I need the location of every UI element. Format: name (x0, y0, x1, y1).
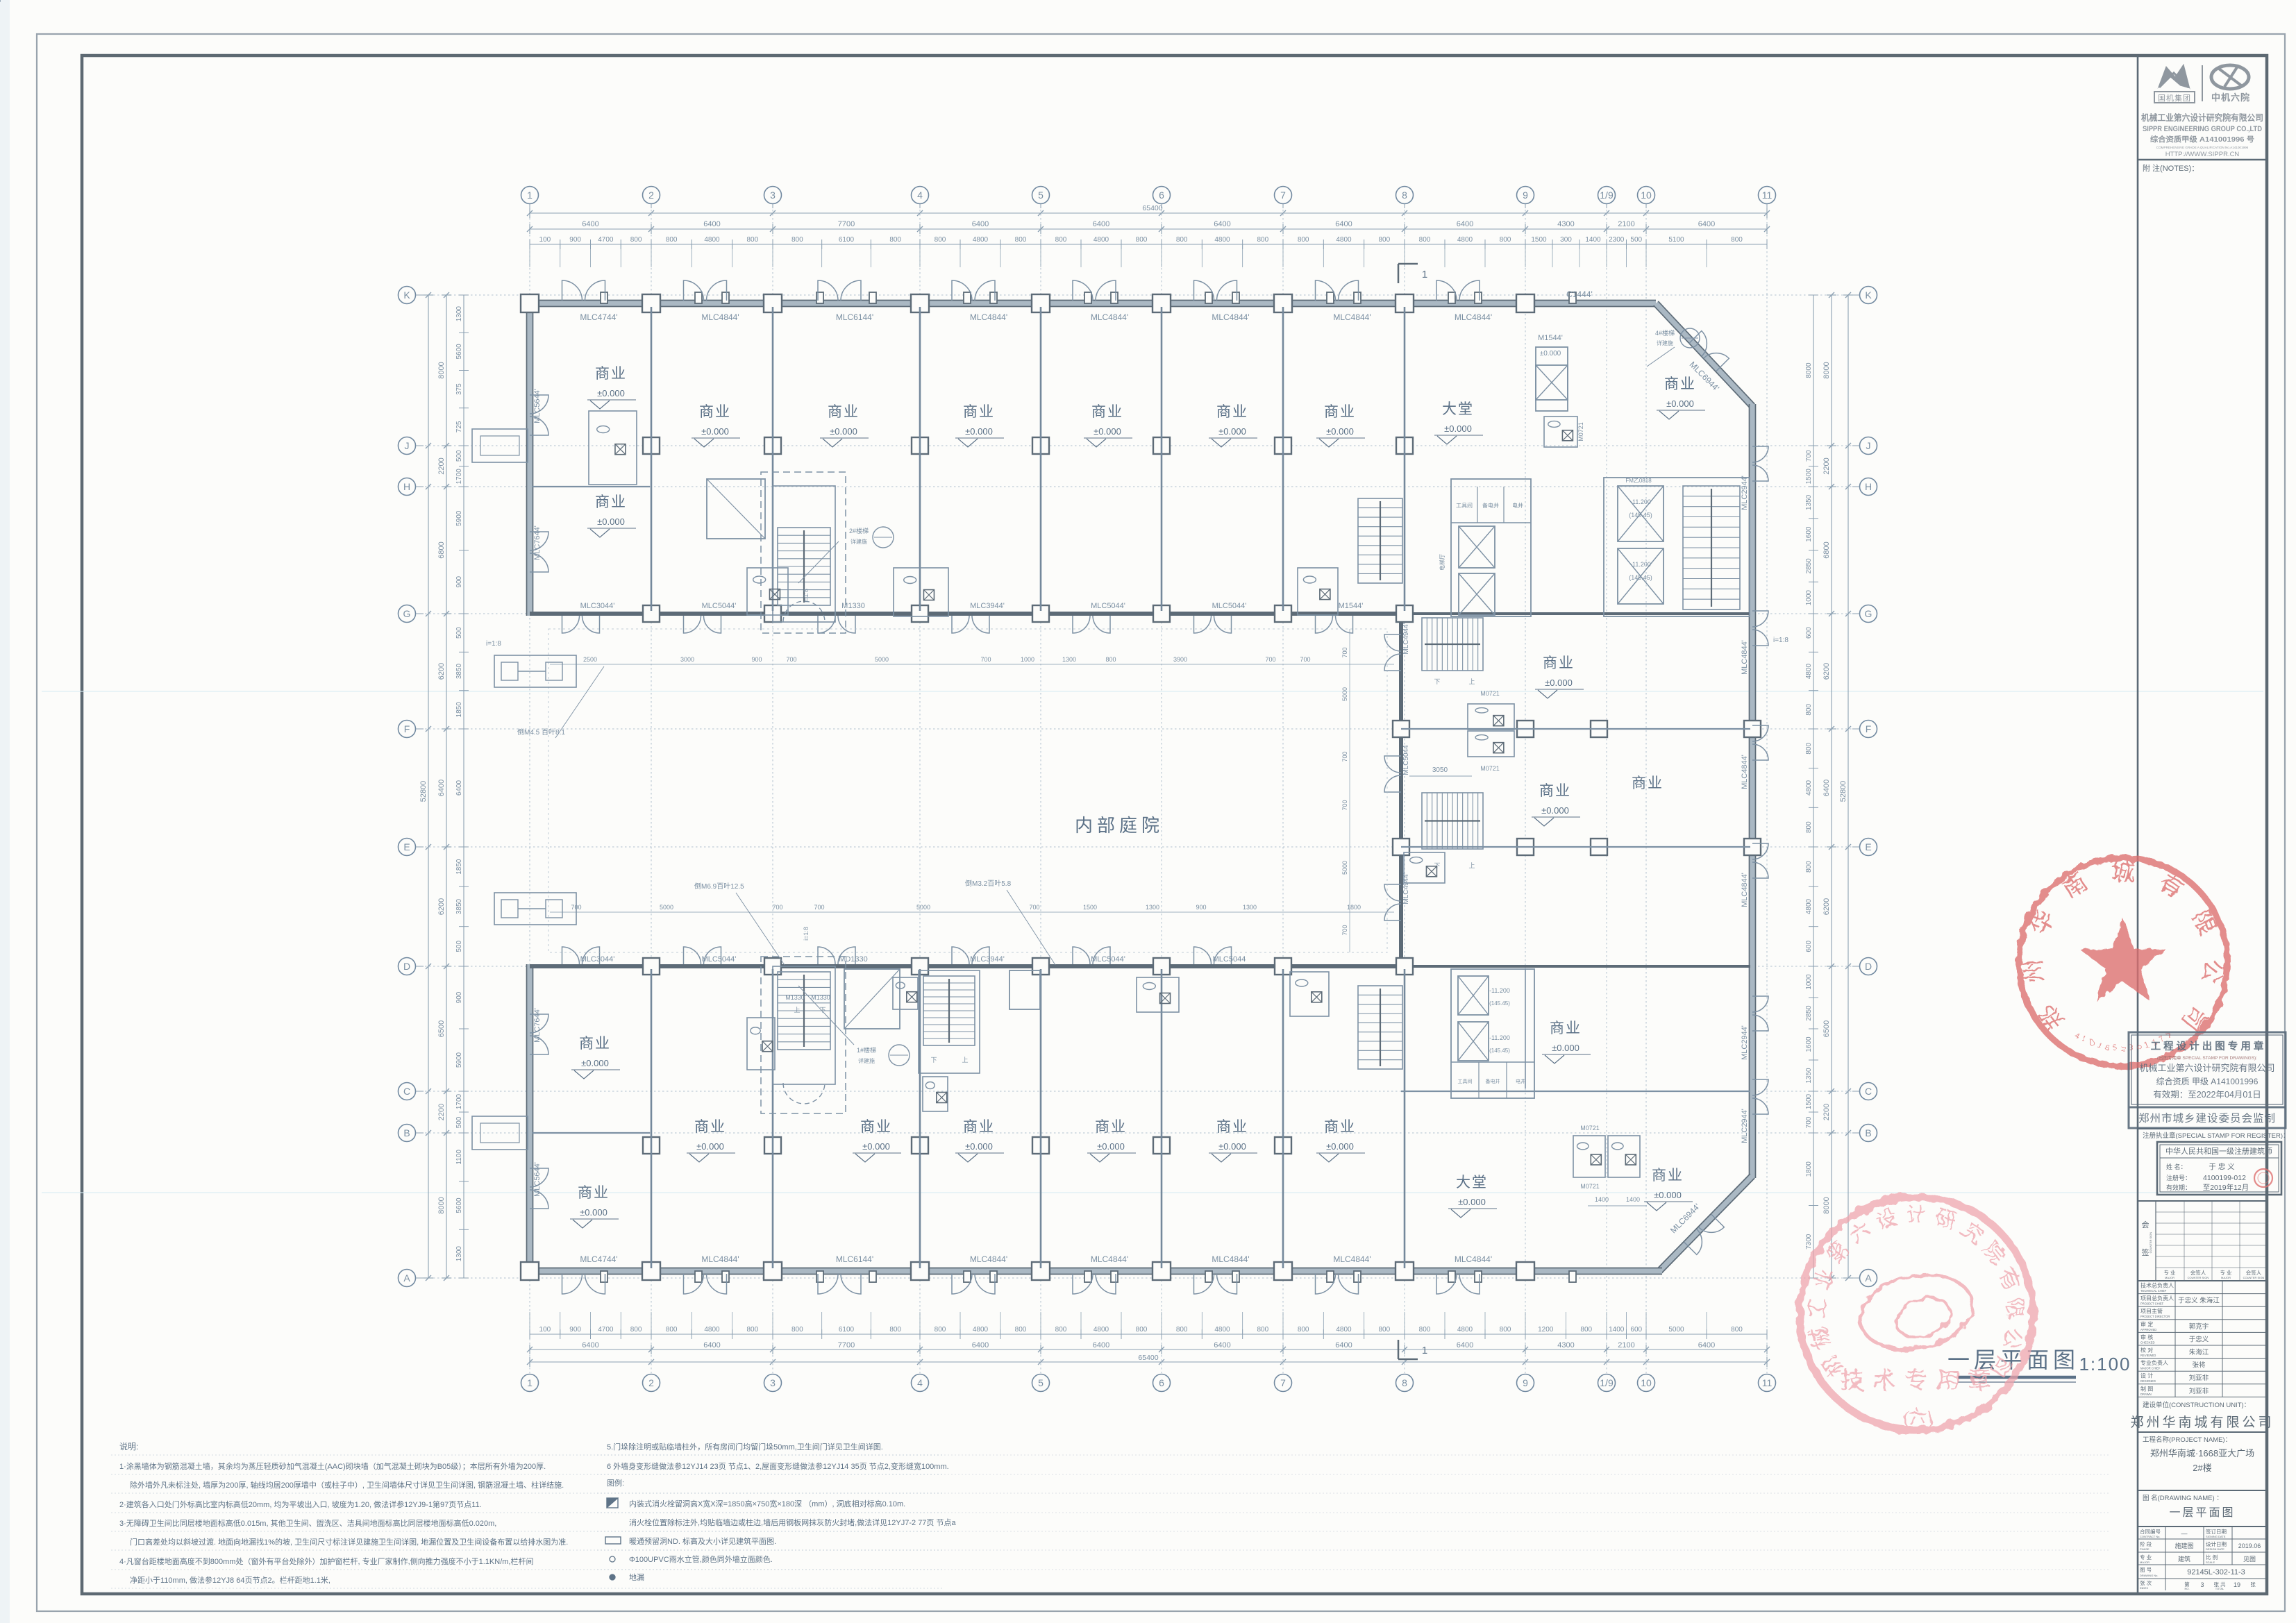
svg-text:上: 上 (962, 1057, 968, 1063)
svg-text:电井: 电井 (1512, 502, 1523, 509)
svg-text:B: B (403, 1127, 410, 1138)
svg-text:C: C (403, 1086, 410, 1097)
svg-text:一层平面图: 一层平面图 (1947, 1347, 2079, 1372)
svg-text:MLC6144': MLC6144' (836, 312, 873, 322)
svg-text:6500: 6500 (437, 1020, 446, 1037)
svg-text:H: H (403, 481, 410, 492)
svg-text:商业: 商业 (1216, 404, 1248, 420)
svg-text:i=1:8: i=1:8 (486, 640, 501, 648)
svg-text:Φ100UPVC雨水立管,颜色同外墙立面颜色.: Φ100UPVC雨水立管,颜色同外墙立面颜色. (629, 1554, 773, 1564)
svg-text:800: 800 (1015, 236, 1027, 244)
svg-text:6400: 6400 (972, 220, 989, 228)
svg-text:MLC5044': MLC5044' (1212, 602, 1247, 610)
svg-text:MLC5044: MLC5044 (1402, 745, 1410, 775)
svg-text:52800: 52800 (1839, 781, 1847, 802)
svg-text:1000: 1000 (1805, 974, 1813, 990)
svg-text:TOTAL: TOTAL (2215, 1587, 2224, 1590)
svg-text:700: 700 (1300, 656, 1310, 663)
svg-text:2: 2 (648, 190, 654, 201)
svg-text:J: J (1866, 440, 1871, 451)
svg-text:SIPPR ENGINEERING GROUP CO.,LT: SIPPR ENGINEERING GROUP CO.,LTD (2143, 125, 2262, 133)
svg-text:于 忠 义: 于 忠 义 (2209, 1163, 2235, 1171)
svg-text:6500: 6500 (1822, 1020, 1831, 1037)
svg-text:4100199-012: 4100199-012 (2203, 1174, 2246, 1182)
svg-text:1850: 1850 (455, 702, 463, 718)
svg-text:2: 2 (648, 1377, 654, 1388)
svg-text:A: A (1865, 1272, 1872, 1284)
svg-text:1400: 1400 (1595, 1196, 1609, 1203)
svg-text:SCALE: SCALE (2206, 1561, 2215, 1564)
svg-text:700: 700 (1805, 1116, 1813, 1128)
svg-text:技术总负责人: 技术总负责人 (2140, 1282, 2174, 1289)
svg-text:800: 800 (1419, 236, 1431, 244)
svg-text:商业: 商业 (1324, 1119, 1356, 1135)
svg-text:签: 签 (2142, 1247, 2150, 1257)
svg-text:1400: 1400 (1585, 236, 1601, 244)
svg-text:(出图专用章 SPECIAL STAMP FOR DRAWI: (出图专用章 SPECIAL STAMP FOR DRAWINGS): (2157, 1054, 2257, 1061)
svg-text:±0.000: ±0.000 (597, 516, 625, 527)
svg-text:MLC4844': MLC4844' (1741, 755, 1749, 789)
svg-text:6400: 6400 (1457, 220, 1473, 228)
svg-text:±0.000: ±0.000 (1326, 426, 1354, 437)
svg-text:项目主管: 项目主管 (2140, 1308, 2163, 1315)
svg-text:5: 5 (1038, 1377, 1044, 1388)
svg-text:5600: 5600 (455, 344, 463, 360)
svg-text:上: 上 (794, 1007, 800, 1014)
svg-text:MAJOR: MAJOR (2140, 1561, 2150, 1564)
svg-text:8: 8 (1402, 1377, 1407, 1388)
svg-text:FM乙0818: FM乙0818 (1625, 478, 1652, 484)
svg-text:会: 会 (2142, 1220, 2150, 1229)
svg-text:5900: 5900 (455, 510, 463, 526)
svg-text:MLC4744': MLC4744' (580, 1254, 617, 1264)
svg-text:暖通预留洞ND. 标高及大小详见建筑平面图.: 暖通预留洞ND. 标高及大小详见建筑平面图. (629, 1536, 776, 1546)
svg-text:4800: 4800 (1805, 898, 1813, 914)
svg-text:1500: 1500 (1805, 1093, 1813, 1109)
svg-text:M1330: M1330 (811, 994, 830, 1001)
svg-text:门口高差处均以斜坡过渡. 地面向地漏找1%的坡, 卫生间尺寸: 门口高差处均以斜坡过渡. 地面向地漏找1%的坡, 卫生间尺寸标注详见建施卫生间详… (130, 1537, 568, 1547)
svg-text:电井: 电井 (1516, 1078, 1525, 1084)
svg-text:用: 用 (1936, 1368, 1960, 1394)
svg-text:i=1:8: i=1:8 (803, 927, 810, 941)
svg-text:APPROVED: APPROVED (2140, 1328, 2156, 1331)
svg-text:800: 800 (1105, 656, 1116, 663)
svg-text:800: 800 (889, 236, 901, 244)
svg-text:100: 100 (539, 236, 551, 244)
svg-text:6400: 6400 (1093, 1341, 1109, 1349)
svg-text:700: 700 (786, 656, 796, 663)
svg-text:MLC4844': MLC4844' (1333, 1254, 1371, 1264)
svg-text:(145.45): (145.45) (1629, 512, 1652, 519)
svg-text:有效期：至2022年04月01日: 有效期：至2022年04月01日 (2153, 1089, 2261, 1100)
svg-text:±0.000: ±0.000 (1654, 1190, 1682, 1200)
svg-text:92145L-302-11-3: 92145L-302-11-3 (2187, 1568, 2245, 1576)
svg-text:800: 800 (1378, 1326, 1390, 1334)
svg-text:PROJECT DIRECTOR: PROJECT DIRECTOR (2140, 1315, 2170, 1318)
svg-text:商业: 商业 (1095, 1119, 1127, 1135)
svg-text:500: 500 (455, 1116, 463, 1128)
svg-text:商业: 商业 (1539, 783, 1571, 799)
svg-text:4700: 4700 (598, 1326, 614, 1334)
svg-text:10: 10 (1641, 1377, 1652, 1388)
svg-text:800: 800 (1176, 1326, 1188, 1334)
svg-text:综合资质 甲级 A141001996: 综合资质 甲级 A141001996 (2156, 1076, 2259, 1086)
svg-text:800: 800 (630, 236, 642, 244)
svg-text:MLC2944': MLC2944' (1741, 476, 1749, 510)
svg-text:800: 800 (1298, 236, 1309, 244)
svg-text:E: E (1865, 841, 1871, 852)
svg-text:G: G (403, 608, 411, 619)
svg-text:郑州华南城·1668亚大广场: 郑州华南城·1668亚大广场 (2150, 1448, 2254, 1458)
svg-text:MAJOR CHIEF: MAJOR CHIEF (2140, 1367, 2161, 1370)
svg-text:项目总负责人: 项目总负责人 (2140, 1295, 2174, 1302)
svg-text:限: 限 (2002, 1297, 2027, 1320)
svg-text:i=1:8: i=1:8 (1773, 637, 1788, 644)
svg-text:K: K (1865, 289, 1872, 301)
svg-text:800: 800 (1378, 236, 1390, 244)
svg-text:800: 800 (1500, 1326, 1511, 1334)
svg-text:制 图: 制 图 (2140, 1385, 2153, 1392)
svg-text:1600: 1600 (1805, 1036, 1813, 1052)
svg-text:4·凡窗台距楼地面高度不到800mm处（窗外有平台处除外）加: 4·凡窗台距楼地面高度不到800mm处（窗外有平台处除外）加护窗栏杆, 专业厂家… (119, 1556, 533, 1566)
svg-text:1350: 1350 (1805, 1068, 1813, 1084)
svg-text:工 程 设 计 出 图 专 用 章: 工 程 设 计 出 图 专 用 章 (2151, 1040, 2264, 1052)
svg-text:MLC4844': MLC4844' (1741, 873, 1749, 907)
svg-text:商业: 商业 (579, 1036, 611, 1052)
svg-text:DRAWING No.: DRAWING No. (2140, 1574, 2159, 1577)
svg-text:倒M6.9百叶12.5: 倒M6.9百叶12.5 (694, 882, 744, 891)
svg-text:COMPREHENSIVE GRADE A QUALIFIC: COMPREHENSIVE GRADE A QUALIFICATION No.A… (2156, 146, 2249, 149)
svg-text:TECHNICAL CHIEF: TECHNICAL CHIEF (2140, 1289, 2167, 1293)
svg-text:工具间: 工具间 (1456, 503, 1473, 509)
svg-text:见图: 见图 (2243, 1556, 2256, 1563)
svg-text:MLC2944': MLC2944' (1741, 1109, 1749, 1143)
svg-text:8000: 8000 (437, 1197, 446, 1213)
svg-text:6400: 6400 (1698, 220, 1715, 228)
svg-text:商业: 商业 (595, 366, 627, 382)
svg-text:除外墙外凡未标注处, 墙厚为200厚, 轴线均居200厚墙中: 除外墙外凡未标注处, 墙厚为200厚, 轴线均居200厚墙中（或柱子中）, 卫生… (130, 1480, 564, 1490)
svg-text:800: 800 (1015, 1326, 1027, 1334)
svg-text:6400: 6400 (1457, 1341, 1473, 1349)
svg-text:1·涂黑墙体为钢筋混凝土墙，其余均为蒸压轻质砂加气混凝土(A: 1·涂黑墙体为钢筋混凝土墙，其余均为蒸压轻质砂加气混凝土(AAC)砌块墙（加气混… (119, 1461, 546, 1471)
svg-text:MLC7644': MLC7644' (533, 1008, 542, 1043)
svg-text:±0.000: ±0.000 (597, 388, 625, 398)
svg-text:3000: 3000 (680, 656, 694, 663)
svg-text:1100: 1100 (455, 1150, 463, 1165)
svg-text:比 例: 比 例 (2206, 1554, 2218, 1561)
svg-text:9: 9 (1523, 1377, 1528, 1388)
svg-text:MLC3044': MLC3044' (580, 955, 615, 964)
svg-text:6200: 6200 (1822, 898, 1831, 915)
svg-text:阶 段: 阶 段 (2140, 1540, 2152, 1547)
svg-text:5: 5 (1038, 190, 1044, 201)
svg-text:6200: 6200 (437, 663, 446, 680)
svg-text:2200: 2200 (1822, 1104, 1831, 1120)
svg-text:1300: 1300 (1062, 656, 1076, 663)
svg-text:详建施: 详建施 (858, 1057, 875, 1064)
svg-text:900: 900 (569, 1326, 581, 1334)
svg-text:2200: 2200 (437, 1104, 446, 1120)
svg-text:DRAWN: DRAWN (2140, 1393, 2152, 1396)
svg-text:800: 800 (666, 236, 678, 244)
svg-text:商业: 商业 (828, 404, 860, 420)
svg-text:2100: 2100 (1618, 1341, 1634, 1349)
svg-text:1#楼梯: 1#楼梯 (857, 1046, 876, 1054)
svg-text:商业: 商业 (963, 404, 995, 420)
svg-text:900: 900 (569, 236, 581, 244)
svg-text:国机集团: 国机集团 (2158, 93, 2191, 103)
svg-text:4800: 4800 (1093, 236, 1109, 244)
svg-text:MLC5044': MLC5044' (1091, 955, 1125, 964)
svg-text:商业: 商业 (1324, 404, 1356, 420)
svg-text:5100: 5100 (1668, 236, 1684, 244)
svg-text:65400: 65400 (1138, 1354, 1158, 1362)
svg-text:详建施: 详建施 (850, 538, 867, 545)
svg-text:800: 800 (1805, 821, 1813, 833)
svg-text:于忠义: 于忠义 (2189, 1336, 2209, 1343)
svg-text:M0721: M0721 (1577, 422, 1584, 442)
svg-text:专 业: 专 业 (2220, 1269, 2232, 1276)
svg-text:500: 500 (455, 941, 463, 952)
svg-text:下: 下 (930, 1057, 937, 1063)
svg-text:2200: 2200 (1822, 457, 1831, 474)
svg-text:D: D (1865, 961, 1872, 972)
svg-text:4700: 4700 (598, 236, 614, 244)
svg-text:MLC4844': MLC4844' (701, 1254, 739, 1264)
svg-text:19: 19 (2234, 1581, 2240, 1588)
svg-text:4800: 4800 (1805, 780, 1813, 796)
svg-text:1400: 1400 (1609, 1326, 1625, 1334)
svg-text:725: 725 (455, 421, 463, 432)
svg-text:商业: 商业 (578, 1185, 610, 1201)
svg-text:800: 800 (935, 236, 946, 244)
svg-text:MLC3944': MLC3944' (970, 602, 1005, 610)
svg-text:备电井: 备电井 (1486, 1078, 1500, 1084)
svg-text:MLC3944': MLC3944' (970, 955, 1005, 964)
svg-text:H: H (1865, 481, 1872, 492)
svg-text:商业: 商业 (699, 404, 731, 420)
svg-text:500: 500 (1630, 236, 1642, 244)
svg-text:内部庭院: 内部庭院 (1075, 815, 1164, 836)
svg-text:800: 800 (1176, 236, 1188, 244)
svg-text:MAJOR: MAJOR (2221, 1276, 2231, 1279)
svg-text:M1544': M1544' (1538, 334, 1563, 342)
svg-text:MLC4844': MLC4844' (970, 1254, 1007, 1264)
svg-text:6400: 6400 (1822, 780, 1831, 796)
svg-text:700: 700 (980, 656, 991, 663)
svg-text:4300: 4300 (1557, 1341, 1574, 1349)
svg-text:800: 800 (791, 236, 803, 244)
svg-text:600: 600 (1630, 1326, 1642, 1334)
svg-text:商业: 商业 (595, 494, 627, 510)
svg-text:设计日期: 设计日期 (2206, 1540, 2227, 1547)
svg-text:K: K (403, 289, 410, 301)
svg-text:郑州市城乡建设委员会监制: 郑州市城乡建设委员会监制 (2138, 1112, 2276, 1125)
svg-text:郑州华南城有限公司: 郑州华南城有限公司 (2130, 1415, 2274, 1430)
svg-text:图 名(DRAWING NAME) ：: 图 名(DRAWING NAME) ： (2143, 1494, 2223, 1502)
svg-text:MLC5044': MLC5044' (702, 602, 737, 610)
svg-text:±0.000: ±0.000 (1218, 426, 1246, 437)
svg-text:有效期：: 有效期： (2166, 1184, 2191, 1191)
svg-text:6400: 6400 (1214, 220, 1230, 228)
svg-text:图 号: 图 号 (2140, 1567, 2152, 1573)
svg-text:9: 9 (1523, 190, 1528, 201)
svg-text:7: 7 (1280, 190, 1286, 201)
svg-text:商业: 商业 (860, 1119, 892, 1135)
svg-text:700: 700 (1341, 751, 1348, 762)
svg-text:4800: 4800 (1805, 663, 1813, 679)
svg-text:1850: 1850 (455, 859, 463, 875)
svg-text:机械工业第六设计研究院有限公司: 机械工业第六设计研究院有限公司 (2139, 1063, 2274, 1073)
svg-text:刘亚非: 刘亚非 (2189, 1374, 2209, 1382)
svg-text:1: 1 (1422, 1345, 1427, 1356)
svg-text:5000: 5000 (1341, 687, 1348, 701)
svg-text:1500: 1500 (1083, 904, 1097, 911)
svg-text:工具间: 工具间 (1458, 1079, 1473, 1084)
svg-text:上: 上 (1468, 862, 1475, 869)
svg-text:机械工业第六设计研究院有限公司: 机械工业第六设计研究院有限公司 (2141, 112, 2263, 123)
svg-text:6100: 6100 (839, 236, 855, 244)
svg-text:700: 700 (1341, 647, 1348, 657)
svg-text:800: 800 (1805, 861, 1813, 873)
svg-text:1700: 1700 (455, 1093, 463, 1109)
svg-text:700: 700 (1341, 800, 1348, 810)
svg-text:内装式消火栓留洞高X宽X深=1850高×750宽×180深: 内装式消火栓留洞高X宽X深=1850高×750宽×180深 （mm）, 洞底相对… (629, 1499, 905, 1508)
svg-text:7300: 7300 (1805, 1234, 1813, 1250)
svg-text:商业: 商业 (963, 1119, 995, 1135)
svg-text:商业: 商业 (1216, 1119, 1248, 1135)
svg-text:1500: 1500 (1805, 469, 1813, 485)
svg-text:6: 6 (1159, 190, 1164, 201)
svg-text:4: 4 (917, 190, 923, 201)
svg-text:MLC5644': MLC5644' (533, 1162, 542, 1197)
svg-text:MLC4844': MLC4844' (1091, 1254, 1128, 1264)
svg-text:800: 800 (666, 1326, 678, 1334)
svg-text:±0.000: ±0.000 (1545, 678, 1573, 688)
svg-text:MLC5044: MLC5044 (1213, 955, 1246, 964)
svg-text:工: 工 (1806, 1297, 1830, 1320)
svg-text:800: 800 (1257, 1326, 1268, 1334)
svg-text:会签人: 会签人 (2246, 1269, 2262, 1276)
svg-text:审 核: 审 核 (2140, 1334, 2153, 1340)
svg-text:700: 700 (1029, 904, 1039, 911)
svg-text:(145.45): (145.45) (1629, 574, 1652, 581)
svg-text:DESIGNED: DESIGNED (2140, 1379, 2156, 1383)
svg-text:1300: 1300 (1146, 904, 1159, 911)
svg-text:800: 800 (1805, 704, 1813, 716)
svg-text:建筑: 建筑 (2178, 1555, 2190, 1563)
svg-text:设 计: 设 计 (2140, 1372, 2153, 1379)
svg-text:6400: 6400 (1093, 220, 1109, 228)
svg-text:4#楼梯: 4#楼梯 (1655, 329, 1675, 337)
svg-text:5900: 5900 (455, 1052, 463, 1068)
svg-text:5: 5 (2113, 1044, 2118, 1052)
svg-text:800: 800 (1055, 1326, 1067, 1334)
svg-text:6100: 6100 (839, 1326, 855, 1334)
svg-text:1/9: 1/9 (1600, 190, 1614, 201)
svg-text:B: B (1865, 1127, 1871, 1138)
svg-text:800: 800 (1500, 236, 1511, 244)
svg-text:术: 术 (1872, 1368, 1896, 1394)
svg-text:700: 700 (1265, 656, 1275, 663)
svg-text:6400: 6400 (455, 780, 463, 796)
svg-text:MLC4744': MLC4744' (580, 312, 617, 322)
svg-text:4800: 4800 (1457, 236, 1473, 244)
svg-text:600: 600 (1805, 941, 1813, 952)
svg-text:章: 章 (1968, 1368, 1992, 1394)
svg-text:2: 2 (2121, 1045, 2125, 1053)
svg-text:6400: 6400 (972, 1341, 989, 1349)
svg-text:±0.000: ±0.000 (1666, 398, 1694, 409)
svg-text:商业: 商业 (1632, 775, 1664, 791)
svg-text:4: 4 (917, 1377, 923, 1388)
svg-text:±0.000: ±0.000 (696, 1141, 724, 1152)
svg-text:1300: 1300 (455, 306, 463, 322)
svg-text:MLC4844': MLC4844' (1455, 312, 1492, 322)
svg-text:4800: 4800 (704, 1326, 720, 1334)
svg-text:专业负责人: 专业负责人 (2140, 1359, 2168, 1366)
svg-text:于忠义 朱海江: 于忠义 朱海江 (2178, 1297, 2220, 1305)
svg-text:消火栓位置除标注外,均贴临墙边或柱边,墙后用钢板网抹灰防火封: 消火栓位置除标注外,均贴临墙边或柱边,墙后用钢板网抹灰防火封堵,做法详见12YJ… (629, 1517, 956, 1527)
svg-text:商业: 商业 (1550, 1020, 1582, 1036)
svg-text:4800: 4800 (1336, 236, 1352, 244)
svg-text:2019.06: 2019.06 (2238, 1542, 2261, 1549)
svg-text:1700: 1700 (455, 469, 463, 485)
svg-text:G: G (1865, 608, 1872, 619)
svg-text:±0.000: ±0.000 (1552, 1043, 1579, 1053)
svg-text:±0.000: ±0.000 (965, 1141, 993, 1152)
svg-text:3900: 3900 (1173, 656, 1187, 663)
svg-text:5000: 5000 (660, 904, 673, 911)
svg-text:300: 300 (1560, 236, 1572, 244)
svg-text:综合资质甲级 A141001996 号: 综合资质甲级 A141001996 号 (2150, 135, 2254, 144)
svg-text:4800: 4800 (1457, 1326, 1473, 1334)
svg-text:5000: 5000 (1668, 1326, 1684, 1334)
svg-text:张: 张 (2250, 1581, 2256, 1588)
svg-text:±0.000: ±0.000 (1326, 1141, 1354, 1152)
svg-text:3850: 3850 (455, 898, 463, 914)
svg-text:4800: 4800 (973, 236, 989, 244)
svg-text:6200: 6200 (1822, 663, 1831, 680)
svg-text:11: 11 (1762, 190, 1773, 201)
svg-text:F: F (404, 723, 410, 734)
svg-text:±0.000: ±0.000 (1540, 350, 1561, 358)
svg-text:6200: 6200 (437, 898, 446, 915)
svg-text:DESIGN DATE: DESIGN DATE (2206, 1547, 2224, 1551)
svg-text:校 对: 校 对 (2140, 1347, 2153, 1354)
svg-text:工程名称(PROJECT NAME)：: 工程名称(PROJECT NAME)： (2143, 1436, 2231, 1444)
svg-text:CONTRACT No.: CONTRACT No. (2140, 1535, 2160, 1538)
svg-text:刘亚非: 刘亚非 (2189, 1387, 2209, 1395)
svg-text:6800: 6800 (1822, 541, 1831, 558)
svg-text:800: 800 (630, 1326, 642, 1334)
svg-text:4800: 4800 (1093, 1326, 1109, 1334)
svg-text:6 外墙身变形缝做法参12YJ14 23页 节点1、2,屋: 6 外墙身变形缝做法参12YJ14 23页 节点1、2,屋面变形缝做法参12YJ… (607, 1461, 949, 1471)
svg-text:J: J (405, 440, 410, 451)
svg-text:1800: 1800 (1805, 1161, 1813, 1177)
svg-text:会签人: 会签人 (2190, 1269, 2206, 1276)
svg-text:张 次: 张 次 (2140, 1579, 2152, 1586)
svg-text:专 业: 专 业 (2163, 1269, 2176, 1276)
svg-text:500: 500 (455, 627, 463, 639)
svg-text:商业: 商业 (1664, 376, 1696, 392)
svg-text:下: 下 (1434, 678, 1440, 685)
svg-text:D: D (403, 961, 410, 972)
svg-text:中华人民共和国一级注册建筑师: 中华人民共和国一级注册建筑师 (2165, 1146, 2272, 1156)
svg-text:2850: 2850 (1805, 558, 1813, 574)
svg-text:±0.000: ±0.000 (862, 1141, 890, 1152)
svg-text:3050: 3050 (1432, 766, 1448, 774)
